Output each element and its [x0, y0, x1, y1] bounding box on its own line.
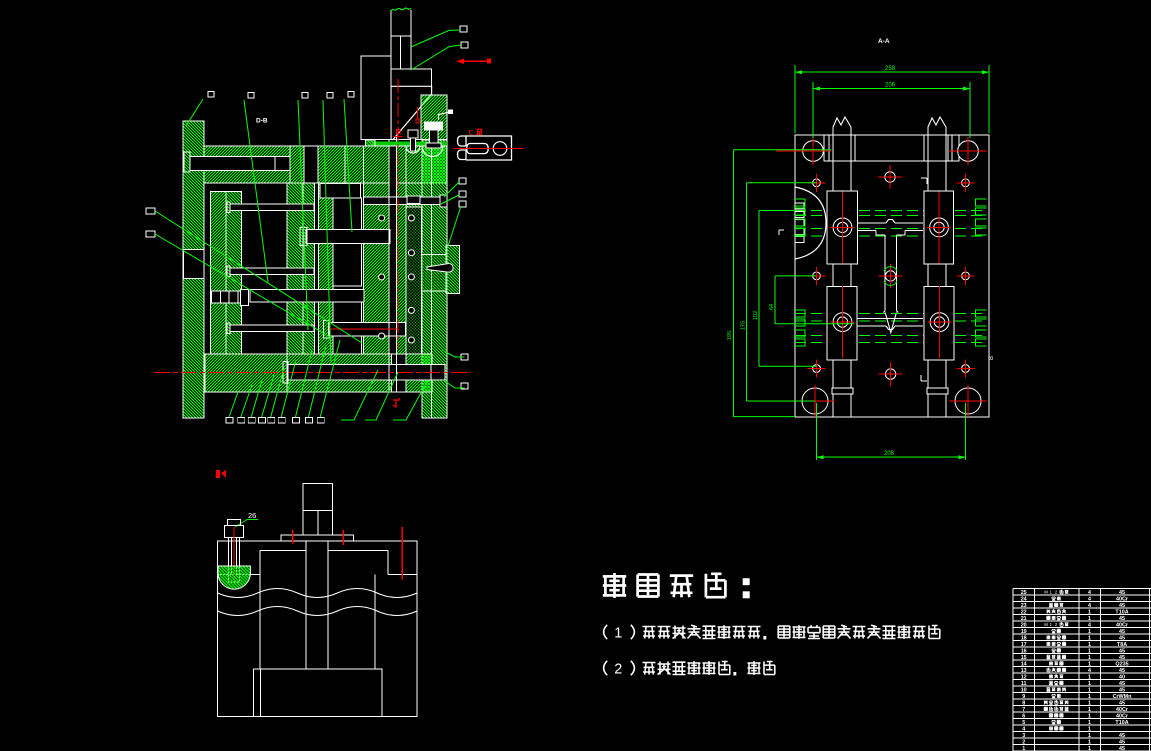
svg-text:40: 40 [1119, 674, 1125, 680]
svg-text:1: 1 [1088, 707, 1091, 713]
svg-text:175: 175 [741, 321, 747, 330]
svg-text:5: 5 [1022, 720, 1025, 726]
svg-text:4: 4 [1022, 726, 1025, 732]
svg-text:11: 11 [1021, 681, 1027, 687]
svg-text:T10A: T10A [1115, 720, 1128, 726]
svg-text:1: 1 [1088, 681, 1091, 687]
svg-text:1: 1 [1088, 726, 1091, 732]
svg-text:45: 45 [1119, 687, 1125, 693]
svg-text:1: 1 [1088, 635, 1091, 641]
svg-text:T10A: T10A [1115, 609, 1128, 615]
svg-text:20: 20 [1021, 622, 1027, 628]
svg-text:40Cr: 40Cr [1116, 596, 1129, 602]
svg-text:45: 45 [1119, 733, 1125, 739]
svg-text:23: 23 [1021, 603, 1027, 609]
svg-text:8: 8 [1022, 700, 1025, 706]
svg-text:1: 1 [1088, 661, 1091, 667]
svg-text:45: 45 [1119, 739, 1125, 745]
svg-text:4: 4 [1088, 668, 1091, 674]
svg-text:45: 45 [1119, 635, 1125, 641]
svg-text:1: 1 [1088, 720, 1091, 726]
svg-text:3: 3 [1022, 733, 1025, 739]
svg-text:CrWMn: CrWMn [1113, 694, 1132, 700]
svg-text:B: B [989, 356, 995, 360]
svg-text:18: 18 [1021, 635, 1027, 641]
svg-text:A-A: A-A [878, 38, 890, 45]
svg-text:64: 64 [769, 304, 775, 310]
svg-text:T8A: T8A [1117, 642, 1127, 648]
svg-text:M: M [1044, 622, 1048, 627]
svg-text:21: 21 [1021, 616, 1027, 622]
svg-text:45: 45 [1119, 648, 1125, 654]
svg-text:10: 10 [1021, 687, 1027, 693]
svg-text:102: 102 [753, 311, 759, 320]
svg-text:1: 1 [1088, 674, 1091, 680]
svg-text:26: 26 [248, 511, 256, 520]
svg-text:40Cr: 40Cr [1116, 707, 1129, 713]
svg-text:45: 45 [1119, 668, 1125, 674]
svg-text:1: 1 [1088, 616, 1091, 622]
svg-text:45: 45 [1119, 655, 1125, 661]
svg-text:4: 4 [1088, 603, 1091, 609]
svg-text:45: 45 [1119, 616, 1125, 622]
svg-text:1: 1 [1088, 609, 1091, 615]
svg-text:1: 1 [1088, 687, 1091, 693]
svg-text:4: 4 [1088, 596, 1091, 602]
svg-text:1: 1 [1088, 694, 1091, 700]
svg-text:1: 1 [1088, 713, 1091, 719]
svg-text:45: 45 [1119, 700, 1125, 706]
svg-text:1: 1 [1088, 629, 1091, 635]
svg-text:1: 1 [1088, 733, 1091, 739]
svg-text:45: 45 [1119, 746, 1125, 751]
svg-text:15: 15 [1021, 655, 1027, 661]
svg-text:13: 13 [1021, 668, 1027, 674]
svg-text:1: 1 [1088, 739, 1091, 745]
svg-text:1: 1 [1022, 746, 1025, 751]
svg-text:9: 9 [1022, 694, 1025, 700]
svg-text:17: 17 [1021, 642, 1027, 648]
svg-text:1: 1 [1088, 655, 1091, 661]
svg-text:25: 25 [1021, 590, 1027, 596]
svg-text:1: 1 [1088, 648, 1091, 654]
svg-text:M: M [1044, 590, 1048, 595]
svg-text:2: 2 [614, 662, 622, 678]
svg-text:195: 195 [727, 331, 733, 340]
svg-text:206: 206 [885, 83, 896, 89]
svg-text:Q235: Q235 [1115, 661, 1128, 667]
svg-text:1: 1 [1088, 700, 1091, 706]
svg-text:14: 14 [1021, 661, 1027, 667]
svg-text:16: 16 [1021, 648, 1027, 654]
svg-text:19: 19 [1021, 629, 1027, 635]
svg-text:4: 4 [1088, 622, 1091, 628]
svg-text:40Cr: 40Cr [1116, 713, 1129, 719]
svg-text:208: 208 [884, 451, 895, 457]
svg-text:24: 24 [1021, 596, 1027, 602]
svg-text:22: 22 [1021, 609, 1027, 615]
svg-text:258: 258 [885, 66, 896, 72]
svg-text:1: 1 [1088, 746, 1091, 751]
svg-text:2: 2 [1022, 739, 1025, 745]
svg-text:45: 45 [1119, 681, 1125, 687]
svg-text:40Cr: 40Cr [1116, 622, 1129, 628]
svg-text:45: 45 [1119, 590, 1125, 596]
svg-text:1: 1 [1088, 642, 1091, 648]
svg-text:D-B: D-B [256, 118, 268, 125]
svg-text:6: 6 [1022, 713, 1025, 719]
svg-text:45: 45 [1119, 629, 1125, 635]
svg-text:1: 1 [614, 626, 622, 642]
svg-text:12: 12 [1021, 674, 1027, 680]
svg-text:4: 4 [1088, 590, 1091, 596]
svg-text:7: 7 [1022, 707, 1025, 713]
svg-text:45: 45 [1119, 603, 1125, 609]
